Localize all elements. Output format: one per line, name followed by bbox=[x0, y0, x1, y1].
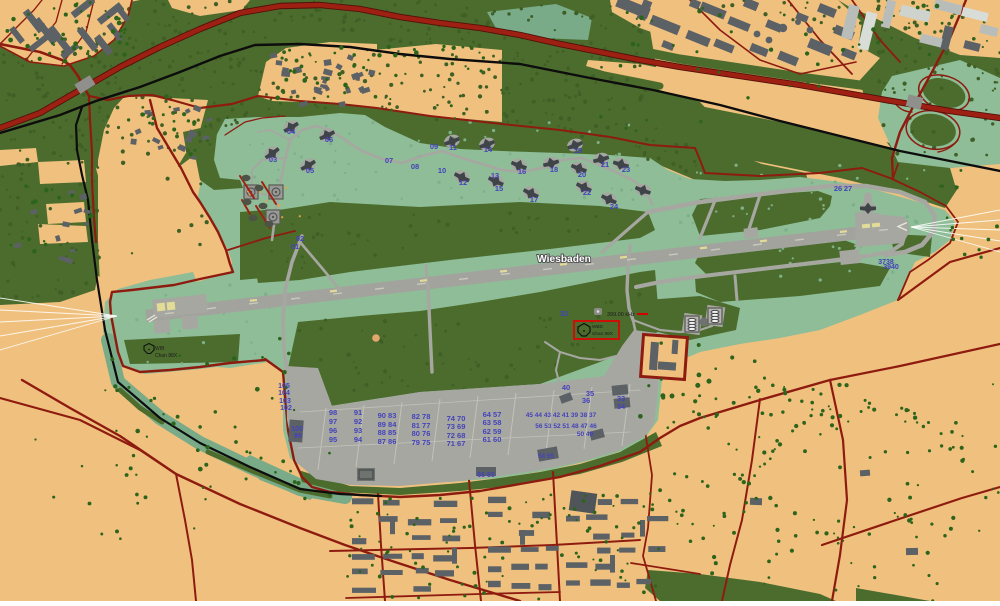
svg-text:34: 34 bbox=[617, 402, 626, 411]
svg-text:06: 06 bbox=[325, 135, 333, 144]
svg-text:100: 100 bbox=[291, 426, 303, 433]
svg-text:103: 103 bbox=[279, 398, 291, 405]
svg-text:98: 98 bbox=[329, 408, 337, 417]
svg-text:399.00 kHz: 399.00 kHz bbox=[607, 312, 635, 318]
svg-text:07: 07 bbox=[385, 156, 393, 165]
svg-text:10: 10 bbox=[438, 166, 446, 175]
svg-text:13: 13 bbox=[491, 171, 499, 180]
svg-text:12: 12 bbox=[459, 178, 467, 187]
svg-text:94: 94 bbox=[354, 435, 363, 444]
svg-text:Chan 88X: Chan 88X bbox=[155, 353, 178, 359]
svg-text:04: 04 bbox=[287, 127, 296, 136]
svg-text:88 85: 88 85 bbox=[378, 428, 397, 437]
svg-text:80 76: 80 76 bbox=[412, 429, 431, 438]
svg-text:105: 105 bbox=[278, 383, 290, 390]
svg-text:17: 17 bbox=[530, 195, 538, 204]
svg-text:66 65: 66 65 bbox=[477, 472, 495, 479]
svg-text:79 75: 79 75 bbox=[412, 438, 431, 447]
svg-text:22: 22 bbox=[583, 188, 591, 197]
svg-text:27: 27 bbox=[844, 184, 852, 193]
svg-text:WIB: WIB bbox=[155, 346, 165, 352]
svg-text:19: 19 bbox=[574, 146, 582, 155]
svg-text:WBD: WBD bbox=[592, 324, 604, 329]
svg-text:104: 104 bbox=[278, 390, 290, 397]
svg-text:96: 96 bbox=[329, 426, 337, 435]
svg-text:09: 09 bbox=[430, 142, 438, 151]
svg-text:Wiesbaden: Wiesbaden bbox=[537, 254, 591, 265]
svg-text:92: 92 bbox=[354, 417, 362, 426]
svg-text:95: 95 bbox=[329, 435, 337, 444]
svg-text:91: 91 bbox=[354, 408, 362, 417]
svg-text:90 83: 90 83 bbox=[378, 411, 397, 420]
svg-text:23: 23 bbox=[622, 165, 630, 174]
svg-text:3940: 3940 bbox=[883, 264, 899, 271]
svg-text:93: 93 bbox=[354, 426, 362, 435]
svg-text:87 86: 87 86 bbox=[378, 437, 397, 446]
svg-text:99: 99 bbox=[294, 433, 302, 440]
svg-text:26: 26 bbox=[834, 184, 842, 193]
svg-text:71 67: 71 67 bbox=[447, 439, 466, 448]
svg-text:102: 102 bbox=[280, 405, 292, 412]
svg-text:82 78: 82 78 bbox=[412, 412, 431, 421]
svg-text:08: 08 bbox=[411, 162, 419, 171]
svg-text:Chan 88X: Chan 88X bbox=[592, 331, 614, 336]
svg-text:97: 97 bbox=[329, 417, 337, 426]
svg-text:21: 21 bbox=[601, 160, 609, 169]
svg-text:24: 24 bbox=[610, 202, 619, 211]
svg-text:73 69: 73 69 bbox=[447, 422, 466, 431]
svg-text:45 44 43 42 41 39 38 37: 45 44 43 42 41 39 38 37 bbox=[526, 412, 597, 419]
svg-text:15: 15 bbox=[495, 184, 503, 193]
svg-text:54 55: 54 55 bbox=[538, 453, 555, 460]
svg-text:40: 40 bbox=[562, 383, 570, 392]
svg-text:03: 03 bbox=[269, 155, 277, 164]
svg-text:16: 16 bbox=[518, 167, 526, 176]
svg-text:01: 01 bbox=[291, 242, 299, 251]
svg-text:56 53 52 51 48 47 46: 56 53 52 51 48 47 46 bbox=[535, 423, 597, 430]
svg-text:63 58: 63 58 bbox=[483, 418, 502, 427]
svg-text:36: 36 bbox=[582, 396, 590, 405]
svg-text:20: 20 bbox=[578, 170, 586, 179]
svg-text:32: 32 bbox=[560, 309, 568, 318]
svg-text:61 60: 61 60 bbox=[483, 435, 502, 444]
svg-text:50 49: 50 49 bbox=[577, 431, 594, 438]
svg-text:14: 14 bbox=[484, 145, 493, 154]
svg-text:18: 18 bbox=[550, 165, 558, 174]
svg-text:05: 05 bbox=[306, 166, 314, 175]
svg-text:11: 11 bbox=[449, 143, 457, 152]
svg-text:02: 02 bbox=[296, 234, 304, 243]
